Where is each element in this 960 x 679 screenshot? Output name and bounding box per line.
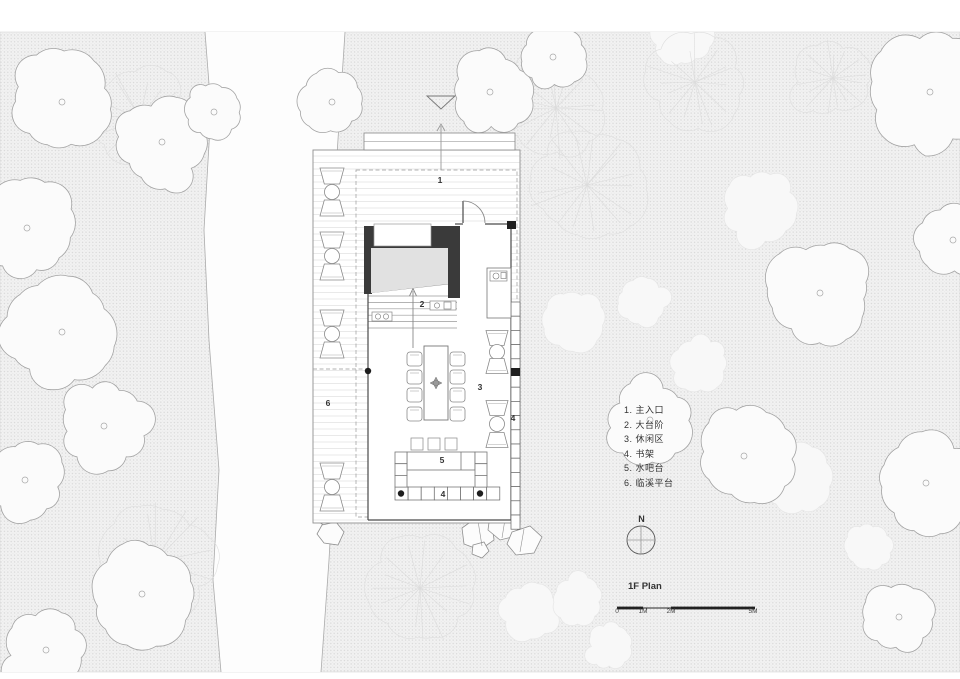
plan-number-label: 3 — [478, 382, 483, 392]
plan-number-label: 5 — [440, 455, 445, 465]
lounge-seating-group — [486, 331, 508, 374]
chair — [320, 200, 344, 216]
plan-number-label: 4 — [511, 413, 516, 423]
column — [365, 368, 371, 374]
chair — [486, 359, 508, 374]
drawing-canvas: 1234546 1. 主入口2. 大台阶3. 休闲区4. 书架5. 水吧台6. … — [0, 0, 960, 679]
dining-chair — [407, 370, 422, 384]
dining-chair — [450, 388, 465, 402]
legend-item: 6. 临溪平台 — [624, 476, 674, 491]
plan-number-label: 6 — [326, 398, 331, 408]
stool — [428, 438, 440, 450]
scale-tick-label: 0 — [615, 608, 619, 615]
north-compass-icon — [624, 525, 658, 557]
plan-title: 1F Plan — [628, 581, 662, 592]
dining-chair — [450, 370, 465, 384]
scale-tick-label: 5M — [748, 608, 757, 615]
chair — [486, 401, 508, 416]
column — [398, 490, 404, 496]
legend-item: 4. 书架 — [624, 447, 674, 462]
legend-item: 2. 大台阶 — [624, 418, 674, 433]
dining-chair — [450, 407, 465, 421]
column — [511, 368, 520, 376]
scale-tick-label: 1M — [638, 608, 647, 615]
dining-chair — [450, 352, 465, 366]
dining-chair — [407, 407, 422, 421]
tree — [870, 32, 960, 156]
legend-item: 3. 休闲区 — [624, 432, 674, 447]
chair — [486, 433, 508, 448]
tree — [12, 49, 111, 148]
site-plan-svg: 1234546 — [0, 0, 960, 679]
plan-number-label: 1 — [438, 175, 443, 185]
plan-number-label: 2 — [420, 299, 425, 309]
building-plan: 1234546 — [313, 96, 520, 529]
legend-item: 5. 水吧台 — [624, 461, 674, 476]
chair — [320, 342, 344, 358]
chair — [320, 463, 344, 479]
scale-bar: 01M2M5M — [615, 599, 765, 619]
entry-niche — [374, 224, 431, 246]
dining-chair — [407, 352, 422, 366]
north-label: N — [625, 514, 658, 524]
chair — [320, 232, 344, 248]
chair — [320, 495, 344, 511]
chair — [486, 331, 508, 346]
entry-steps — [364, 133, 515, 150]
stool — [445, 438, 457, 450]
plan-number-label: 4 — [441, 489, 446, 499]
scale-tick-label: 2M — [666, 608, 675, 615]
chair — [320, 168, 344, 184]
column — [507, 221, 516, 229]
lounge-seating-group — [486, 401, 508, 448]
column — [477, 490, 483, 496]
counter — [487, 268, 511, 318]
dining-chair — [407, 388, 422, 402]
stool — [411, 438, 423, 450]
legend-item: 1. 主入口 — [624, 403, 674, 418]
chair — [320, 310, 344, 326]
chair — [320, 264, 344, 280]
plan-legend: 1. 主入口2. 大台阶3. 休闲区4. 书架5. 水吧台6. 临溪平台 — [624, 403, 674, 491]
north-indicator: N — [624, 514, 658, 562]
bookshelf-bottom — [395, 487, 500, 500]
